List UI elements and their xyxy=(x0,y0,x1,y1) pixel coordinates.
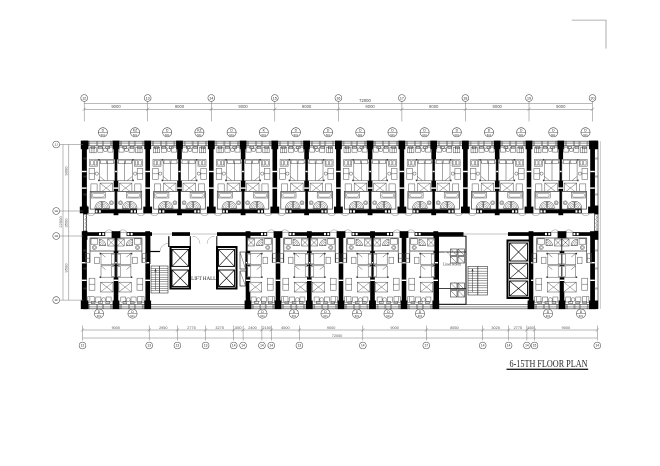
svg-text:KZ: KZ xyxy=(197,129,201,133)
svg-text:13: 13 xyxy=(298,344,302,348)
svg-text:601: 601 xyxy=(229,133,234,137)
svg-text:1G: 1G xyxy=(54,234,59,238)
svg-text:6-15TH FLOOR PLAN: 6-15TH FLOOR PLAN xyxy=(510,359,588,370)
svg-text:2150: 2150 xyxy=(262,326,270,330)
svg-text:15: 15 xyxy=(533,344,537,348)
svg-text:72000: 72000 xyxy=(332,334,343,338)
svg-text:450: 450 xyxy=(528,326,534,330)
svg-text:601: 601 xyxy=(323,314,328,318)
svg-text:9000: 9000 xyxy=(302,104,312,109)
svg-text:601: 601 xyxy=(418,314,423,318)
svg-text:13: 13 xyxy=(204,344,208,348)
svg-text:14: 14 xyxy=(361,344,365,348)
svg-text:13: 13 xyxy=(147,344,151,348)
svg-text:601: 601 xyxy=(455,133,460,137)
svg-text:601: 601 xyxy=(358,133,363,137)
svg-text:17: 17 xyxy=(400,96,404,100)
svg-text:9000: 9000 xyxy=(429,104,439,109)
svg-text:22000: 22000 xyxy=(58,216,63,228)
svg-text:601: 601 xyxy=(519,133,524,137)
svg-text:18: 18 xyxy=(463,96,467,100)
svg-text:601: 601 xyxy=(294,133,299,137)
svg-text:14: 14 xyxy=(209,96,213,100)
svg-text:9000: 9000 xyxy=(390,326,398,330)
svg-text:1F: 1F xyxy=(54,298,58,302)
svg-text:16: 16 xyxy=(336,96,340,100)
svg-text:72000: 72000 xyxy=(359,98,371,103)
svg-text:3500: 3500 xyxy=(64,218,69,228)
svg-text:14: 14 xyxy=(525,344,529,348)
svg-text:601: 601 xyxy=(292,314,297,318)
svg-text:601: 601 xyxy=(260,314,265,318)
svg-text:9000: 9000 xyxy=(556,104,566,109)
svg-text:9000: 9000 xyxy=(175,104,185,109)
svg-text:601: 601 xyxy=(487,133,492,137)
svg-text:14: 14 xyxy=(260,344,264,348)
svg-text:601: 601 xyxy=(546,314,551,318)
svg-text:2400: 2400 xyxy=(248,326,256,330)
svg-text:601: 601 xyxy=(326,133,331,137)
svg-text:3275: 3275 xyxy=(215,326,223,330)
svg-text:2775: 2775 xyxy=(187,326,195,330)
svg-text:14: 14 xyxy=(596,344,600,348)
svg-text:2775: 2775 xyxy=(514,326,522,330)
svg-text:13: 13 xyxy=(146,96,150,100)
svg-text:601: 601 xyxy=(262,133,267,137)
svg-text:9000: 9000 xyxy=(64,166,69,176)
svg-text:601: 601 xyxy=(583,133,588,137)
svg-text:601: 601 xyxy=(97,314,102,318)
svg-text:601: 601 xyxy=(165,133,170,137)
svg-text:9500: 9500 xyxy=(64,263,69,273)
svg-text:601: 601 xyxy=(133,133,138,137)
svg-text:14: 14 xyxy=(481,344,485,348)
svg-text:KZ: KZ xyxy=(133,129,137,133)
svg-text:9000: 9000 xyxy=(111,104,121,109)
svg-text:14: 14 xyxy=(507,344,511,348)
svg-text:3025: 3025 xyxy=(491,326,499,330)
svg-text:2950: 2950 xyxy=(159,326,167,330)
svg-text:601: 601 xyxy=(551,133,556,137)
svg-text:601: 601 xyxy=(422,133,427,137)
svg-text:601: 601 xyxy=(390,133,395,137)
svg-text:19: 19 xyxy=(527,96,531,100)
svg-text:9000: 9000 xyxy=(365,104,375,109)
svg-text:601: 601 xyxy=(386,314,391,318)
svg-text:14: 14 xyxy=(270,344,274,348)
svg-text:4500: 4500 xyxy=(281,326,289,330)
svg-text:12: 12 xyxy=(82,96,86,100)
svg-text:12: 12 xyxy=(81,344,85,348)
svg-text:9000: 9000 xyxy=(238,104,248,109)
svg-text:13: 13 xyxy=(176,344,180,348)
svg-text:8550: 8550 xyxy=(450,326,458,330)
svg-text:1H: 1H xyxy=(54,209,58,213)
svg-text:14: 14 xyxy=(241,344,245,348)
svg-text:17: 17 xyxy=(425,344,429,348)
svg-text:1J: 1J xyxy=(55,143,59,147)
svg-text:601: 601 xyxy=(130,314,135,318)
svg-text:15: 15 xyxy=(273,96,277,100)
svg-text:9000: 9000 xyxy=(112,326,120,330)
svg-text:14: 14 xyxy=(232,344,236,348)
svg-text:601: 601 xyxy=(101,133,106,137)
svg-text:9000: 9000 xyxy=(327,326,335,330)
svg-text:601: 601 xyxy=(579,314,584,318)
svg-text:9000: 9000 xyxy=(493,104,503,109)
svg-text:9000: 9000 xyxy=(562,326,570,330)
svg-text:LIFT HALL: LIFT HALL xyxy=(191,276,216,282)
svg-text:550: 550 xyxy=(235,326,241,330)
svg-text:601: 601 xyxy=(197,133,202,137)
svg-text:20: 20 xyxy=(591,96,595,100)
svg-text:601: 601 xyxy=(355,314,360,318)
